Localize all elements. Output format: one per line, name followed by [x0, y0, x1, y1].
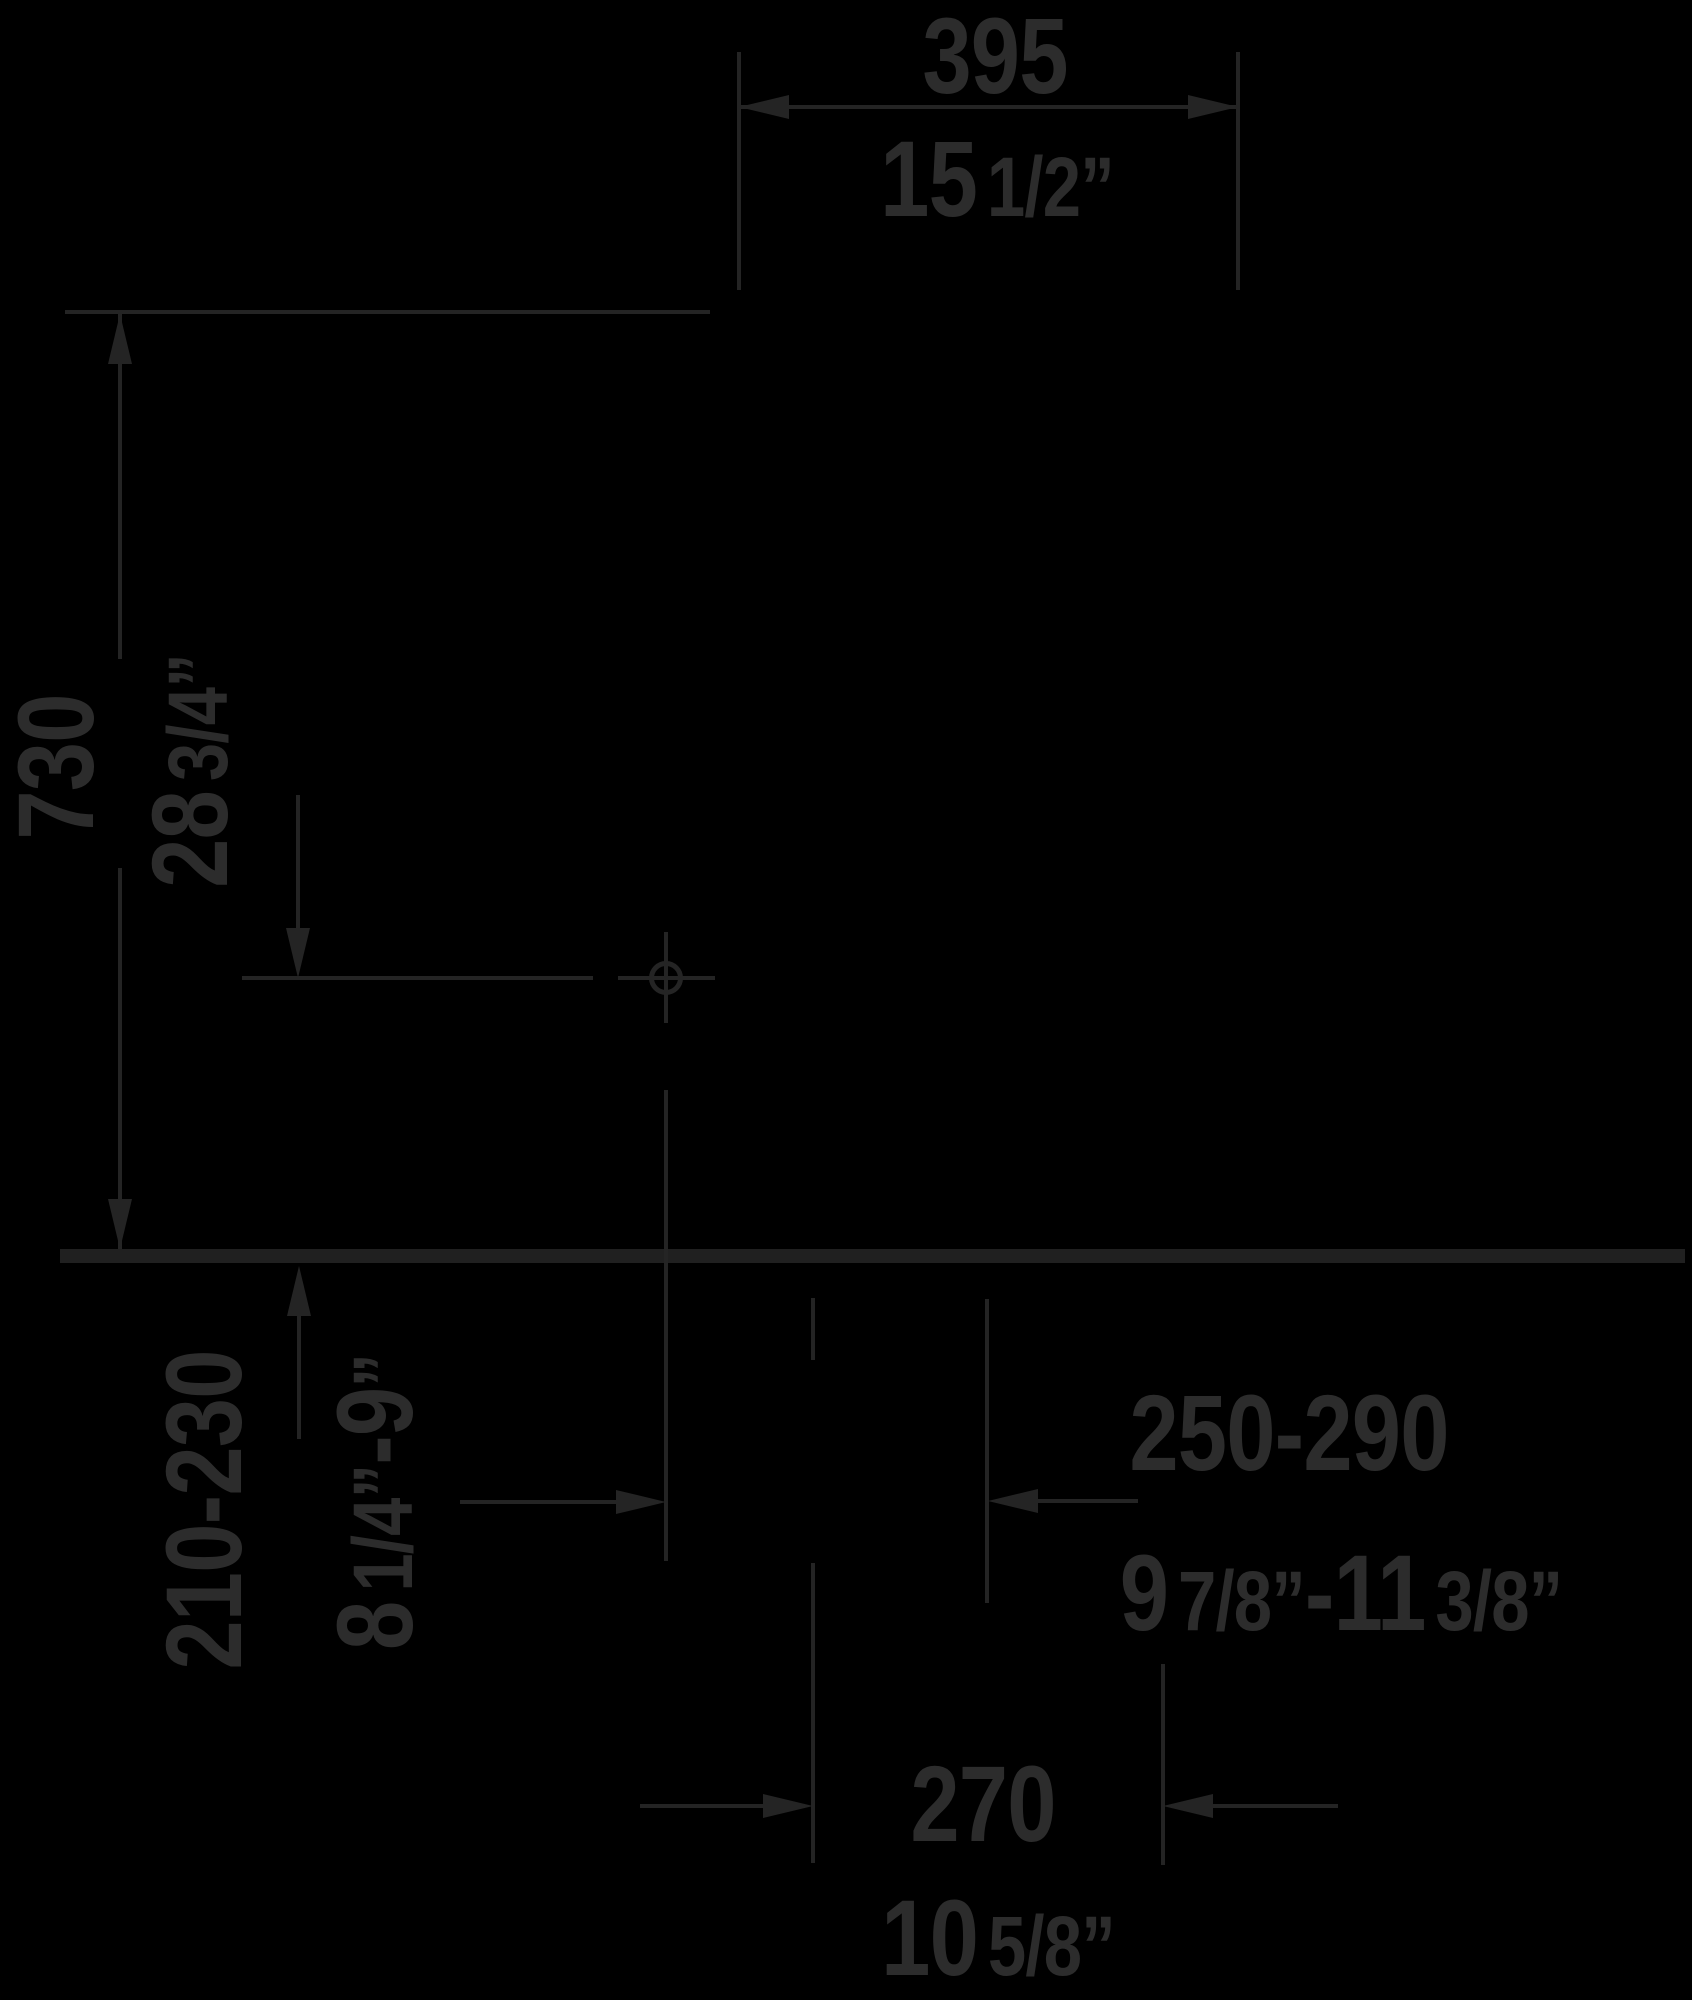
- top-width-inch-whole: 15: [880, 118, 977, 239]
- arrowhead-left-icon: [988, 1489, 1038, 1513]
- bottom-width-extension-left-upper: [811, 1298, 815, 1360]
- label-offset-inch: 97/8”-113/8”: [1120, 1539, 1563, 1647]
- bottom-width-inch-whole: 10: [881, 1877, 978, 1998]
- rear-height-inch-whole-1: 8: [314, 1602, 435, 1650]
- label-bottom-width-mm: 270: [910, 1750, 1055, 1858]
- offset-inch-whole-2: -11: [1305, 1532, 1426, 1653]
- dimension-line-height-lower: [118, 868, 122, 1249]
- dimension-line-height-upper: [118, 314, 122, 659]
- offset-arrow-shaft-right: [1038, 1499, 1138, 1503]
- rear-height-inch-whole-2: -9: [314, 1388, 435, 1465]
- height-inch-whole: 28: [129, 791, 250, 888]
- arrowhead-down-icon: [286, 928, 310, 978]
- bottom-width-arrow-shaft-right: [1213, 1804, 1338, 1808]
- rear-height-inch-fraction-1: 1/4”: [336, 1465, 430, 1592]
- floor-line: [60, 1249, 1685, 1263]
- dimension-drawing: 395 151/2” 730 283/4” 210-230 81/4”-9” 2…: [0, 0, 1692, 2000]
- extension-line-top-right: [1236, 52, 1240, 290]
- position-crosshair-icon: [649, 961, 683, 995]
- arrowhead-left-icon: [1163, 1794, 1213, 1818]
- reference-line-top: [65, 310, 710, 314]
- offset-arrow-shaft-left: [460, 1500, 616, 1504]
- offset-inch-fraction-1: 7/8”: [1178, 1554, 1305, 1648]
- label-height-inch: 283/4”: [136, 654, 244, 888]
- offset-mm-value: 250-290: [1129, 1372, 1448, 1493]
- offset-inch-fraction-2: 3/8”: [1435, 1554, 1562, 1648]
- label-offset-mm: 250-290: [1129, 1379, 1448, 1487]
- label-top-width-inch: 151/2”: [880, 125, 1114, 233]
- extension-line-top-left: [737, 52, 741, 290]
- label-rear-height-inch: 81/4”-9”: [321, 1354, 429, 1650]
- height-inch-fraction: 3/4”: [151, 654, 245, 781]
- label-rear-height-mm: 210-230: [150, 1350, 258, 1669]
- bottom-width-extension-left: [811, 1563, 815, 1863]
- connection-height-line: [242, 976, 593, 980]
- top-width-inch-fraction: 1/2”: [987, 140, 1114, 234]
- label-height-mm: 730: [2, 694, 110, 839]
- bottom-width-arrow-shaft-left: [640, 1804, 763, 1808]
- offset-extension-line: [985, 1299, 989, 1603]
- rear-height-inch-fraction-2: ”: [336, 1354, 430, 1388]
- bottom-width-extension-right: [1161, 1664, 1165, 1865]
- arrowhead-up-icon: [108, 314, 132, 364]
- arrowhead-up-icon: [287, 1266, 311, 1316]
- height-mm-value: 730: [0, 694, 116, 839]
- rear-height-mm-value: 210-230: [143, 1350, 264, 1669]
- pointer-line-rear-height: [297, 1316, 301, 1439]
- arrowhead-right-icon: [763, 1794, 813, 1818]
- bottom-width-inch-fraction: 5/8”: [988, 1899, 1115, 1993]
- label-bottom-width-inch: 105/8”: [881, 1884, 1115, 1992]
- arrowhead-right-icon: [616, 1490, 666, 1514]
- label-top-width-mm: 395: [922, 2, 1067, 110]
- pointer-line-connection: [296, 795, 300, 934]
- offset-inch-whole-1: 9: [1120, 1532, 1168, 1653]
- arrowhead-left-icon: [739, 95, 789, 119]
- arrowhead-down-icon: [108, 1199, 132, 1249]
- top-width-mm-value: 395: [922, 0, 1067, 116]
- arrowhead-right-icon: [1188, 95, 1238, 119]
- bottom-width-mm-value: 270: [910, 1743, 1055, 1864]
